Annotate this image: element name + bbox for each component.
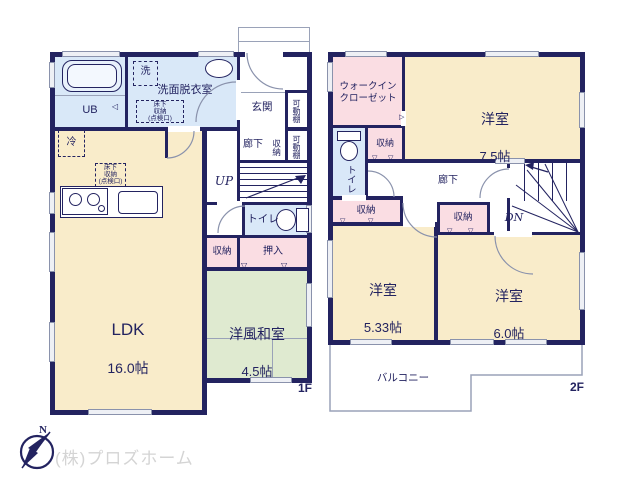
room533-name: 洋室 bbox=[338, 282, 428, 300]
wall bbox=[237, 238, 240, 267]
label-underfloor-ldk: 床下 収納 (点検口) bbox=[96, 164, 125, 185]
door-opening bbox=[168, 126, 200, 132]
wall bbox=[288, 127, 312, 131]
window bbox=[49, 322, 55, 362]
wall bbox=[487, 202, 490, 235]
room533-size: 5.33帖 bbox=[338, 320, 428, 336]
wall bbox=[285, 90, 312, 93]
door-opening bbox=[245, 51, 283, 58]
label-closet-b: 収納 bbox=[352, 205, 380, 217]
wall bbox=[365, 128, 368, 198]
door-stub bbox=[165, 131, 168, 158]
porch-step-line bbox=[239, 41, 309, 42]
window bbox=[345, 51, 387, 57]
door-mark: ▽ bbox=[468, 228, 473, 235]
wall bbox=[437, 202, 490, 205]
label-underfloor-washroom: 床下 収納 (点検口) bbox=[142, 101, 178, 122]
window bbox=[49, 192, 55, 214]
room60-name: 洋室 bbox=[464, 288, 554, 306]
door-opening bbox=[494, 231, 532, 237]
window bbox=[306, 283, 312, 327]
toilet-bowl-2f bbox=[340, 141, 358, 161]
label-room60: 洋室 6.0帖 bbox=[464, 268, 554, 362]
label-oshiire: 押入 bbox=[251, 246, 295, 259]
stair-tread bbox=[240, 191, 312, 192]
door-mark: ▽ bbox=[241, 262, 247, 270]
label-hall-2f: 廊下 bbox=[428, 175, 468, 188]
label-shelf-upper: 可動棚 bbox=[291, 96, 301, 126]
window bbox=[198, 51, 234, 57]
label-washitsu: 洋風和室 4.5帖 bbox=[212, 306, 302, 400]
door-mark: ◁ bbox=[112, 103, 118, 111]
window bbox=[579, 252, 585, 310]
label-shelf-lower: 可動棚 bbox=[291, 133, 301, 161]
window bbox=[49, 62, 55, 88]
stair-tread bbox=[240, 185, 312, 186]
wall bbox=[402, 57, 405, 163]
ldk-name: LDK bbox=[83, 319, 173, 340]
washitsu-name: 洋風和室 bbox=[212, 326, 302, 344]
label-closet-a: 収納 bbox=[371, 138, 399, 149]
door-mark: ▽ bbox=[340, 218, 345, 225]
wall bbox=[125, 57, 128, 127]
label-toilet-2f: トイレ bbox=[344, 162, 356, 196]
label-fridge: 冷 bbox=[61, 137, 82, 150]
label-washroom: 洗面脱衣室 bbox=[140, 84, 230, 98]
stair-tread bbox=[240, 173, 312, 174]
burner-small bbox=[98, 205, 105, 212]
label-bath-ub: UB bbox=[70, 104, 110, 118]
room75-name: 洋室 bbox=[450, 111, 540, 129]
compass-north-label: N bbox=[39, 424, 47, 436]
toilet-tank-2f bbox=[337, 131, 361, 141]
door-mark: ▽ bbox=[281, 262, 287, 270]
door-opening bbox=[403, 221, 435, 227]
wall bbox=[207, 267, 312, 271]
washbasin bbox=[205, 59, 233, 78]
bathtub-inner bbox=[67, 64, 117, 88]
wall bbox=[242, 205, 245, 235]
entrance-porch bbox=[238, 27, 310, 53]
kitchen-sink bbox=[118, 191, 158, 214]
label-up: UP bbox=[210, 174, 238, 189]
wall bbox=[202, 235, 312, 238]
label-ldk: LDK 16.0帖 bbox=[83, 299, 173, 398]
company-name: (株)プロズホーム bbox=[55, 448, 275, 469]
toilet-tank-1f bbox=[296, 208, 309, 232]
room60-size: 6.0帖 bbox=[464, 326, 554, 342]
door-mark: ▽ bbox=[372, 155, 377, 162]
label-room75: 洋室 7.5帖 bbox=[450, 91, 540, 185]
door-mark: ▽ bbox=[447, 228, 452, 235]
label-genkan: 玄関 bbox=[240, 101, 284, 114]
burner bbox=[69, 193, 82, 206]
window bbox=[49, 232, 55, 272]
stair-tread bbox=[552, 163, 553, 201]
label-wic: ウォークイン クローゼット bbox=[333, 81, 403, 105]
door-mark: ▽ bbox=[368, 218, 373, 225]
door-opening bbox=[217, 201, 242, 206]
label-dn: DN bbox=[500, 211, 528, 225]
room75-size: 7.5帖 bbox=[450, 149, 540, 165]
label-toilet-1f: トイレ bbox=[246, 213, 280, 226]
door-mark: ▽ bbox=[388, 155, 393, 162]
stair-tread bbox=[240, 167, 312, 168]
door-mark: ▷ bbox=[399, 114, 404, 121]
burner bbox=[87, 193, 100, 206]
window bbox=[579, 92, 585, 128]
label-hall-1f: 廊下 bbox=[233, 139, 273, 152]
ldk-size: 16.0帖 bbox=[83, 360, 173, 378]
wall bbox=[437, 202, 440, 235]
bath-divider-line bbox=[55, 95, 125, 96]
window bbox=[62, 51, 120, 57]
wall bbox=[240, 160, 312, 163]
label-floor1: 1F bbox=[290, 381, 320, 396]
stair-tread bbox=[240, 197, 312, 198]
floorplan-canvas: UB 洗 洗面脱衣室 床下 収納 (点検口) 玄関 可動棚 可動棚 収納 廊下 … bbox=[0, 0, 640, 480]
window bbox=[88, 409, 152, 415]
wall bbox=[434, 225, 438, 345]
stair-tread bbox=[240, 179, 312, 180]
label-laundry: 洗 bbox=[135, 66, 156, 79]
genkan-step-line bbox=[240, 92, 285, 93]
washitsu-size: 4.5帖 bbox=[212, 364, 302, 380]
label-closet-1f: 収納 bbox=[208, 246, 236, 258]
window bbox=[327, 240, 333, 298]
label-closet-c: 収納 bbox=[449, 212, 477, 224]
label-floor2: 2F bbox=[562, 380, 592, 395]
wall bbox=[202, 131, 207, 415]
window bbox=[485, 51, 539, 57]
label-balcony: バルコニー bbox=[363, 372, 443, 385]
label-room533: 洋室 5.33帖 bbox=[338, 262, 428, 356]
stair-tread bbox=[566, 163, 567, 201]
